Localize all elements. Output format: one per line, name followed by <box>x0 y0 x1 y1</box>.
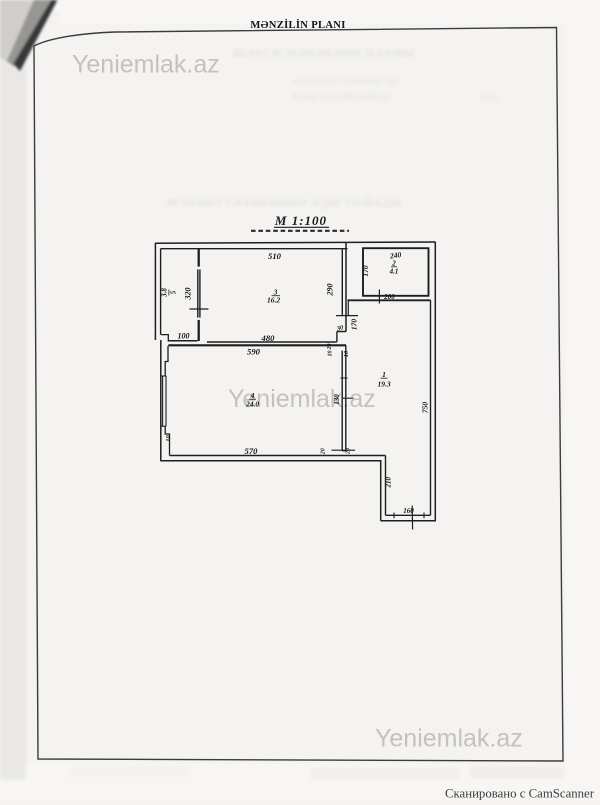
svg-text:16.2: 16.2 <box>267 295 280 304</box>
svg-text:Yeniemlak.az: Yeniemlak.az <box>375 725 523 753</box>
svg-text:10: 10 <box>343 350 350 357</box>
svg-text:510: 510 <box>268 251 282 261</box>
svg-text:20: 20 <box>321 448 327 455</box>
svg-text:2: 2 <box>391 260 396 268</box>
svg-text:570: 570 <box>245 446 259 456</box>
svg-text:M 1:100: M 1:100 <box>274 213 327 228</box>
svg-text:МЭНЗИЛ САХИБИНИН АДЫ СОЙАДЫ: МЭНЗИЛ САХИБИНИН АДЫ СОЙАДЫ <box>167 197 402 209</box>
svg-text:5: 5 <box>169 290 177 294</box>
svg-text:20: 20 <box>346 448 352 455</box>
svg-text:3.8: 3.8 <box>160 288 168 298</box>
svg-text:1: 1 <box>382 370 386 379</box>
svg-text:4.1: 4.1 <box>389 268 399 276</box>
svg-text:БАКЫ ШЭХЭРИ РАЙОН: БАКЫ ШЭХЭРИ РАЙОН <box>292 92 391 102</box>
svg-text:20: 20 <box>327 344 333 351</box>
svg-text:480: 480 <box>261 333 276 343</box>
svg-text:170: 170 <box>349 319 358 331</box>
svg-text:№12: №12 <box>480 92 498 102</box>
svg-text:160: 160 <box>403 507 414 515</box>
svg-text:10: 10 <box>328 351 334 357</box>
svg-text:19.3: 19.3 <box>377 380 390 389</box>
svg-text:200: 200 <box>383 293 395 301</box>
svg-text:750: 750 <box>420 402 429 414</box>
svg-text:ШЭХСИ МЭНЗИЛИН ПЛАНЫ: ШЭХСИ МЭНЗИЛИН ПЛАНЫ <box>233 48 415 60</box>
svg-text:10: 10 <box>165 435 172 442</box>
svg-text:290: 290 <box>325 284 334 297</box>
svg-text:170: 170 <box>361 265 370 277</box>
svg-text:Yeniemlak.az: Yeniemlak.az <box>72 51 220 79</box>
svg-text:Сканировано с CamScanner: Сканировано с CamScanner <box>445 786 595 800</box>
svg-text:100: 100 <box>178 332 190 341</box>
svg-text:24.0: 24.0 <box>245 400 259 409</box>
svg-text:кучэ мэнзил сахибинин ады: кучэ мэнзил сахибинин ады <box>292 76 399 86</box>
svg-text:130: 130 <box>333 394 341 405</box>
svg-text:590: 590 <box>247 347 261 357</box>
svg-text:210: 210 <box>384 477 392 489</box>
svg-text:320: 320 <box>183 288 192 301</box>
